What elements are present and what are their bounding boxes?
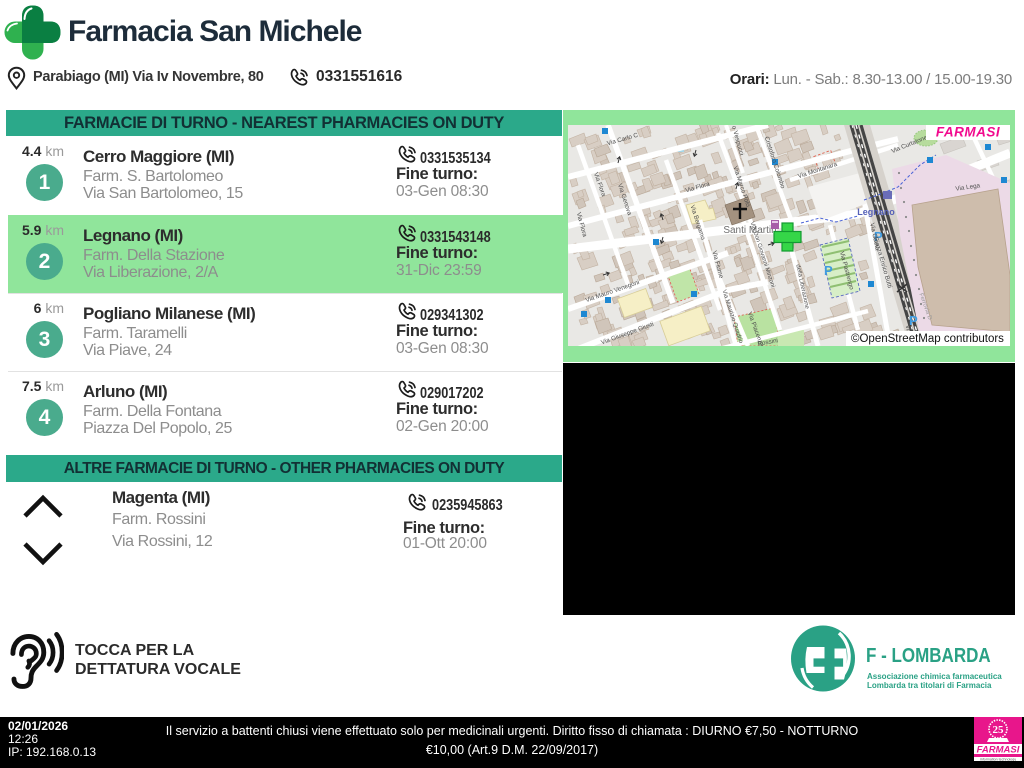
svg-text:information technology: information technology	[980, 757, 1016, 761]
svg-text:P: P	[824, 263, 833, 278]
svg-text:FARMASI: FARMASI	[977, 745, 1020, 756]
svg-text:©OpenStreetMap contributors: ©OpenStreetMap contributors	[851, 333, 1004, 345]
svg-text:25: 25	[993, 724, 1005, 736]
svg-text:FARMASI: FARMASI	[936, 125, 1000, 140]
svg-text:Legnano: Legnano	[857, 207, 895, 217]
